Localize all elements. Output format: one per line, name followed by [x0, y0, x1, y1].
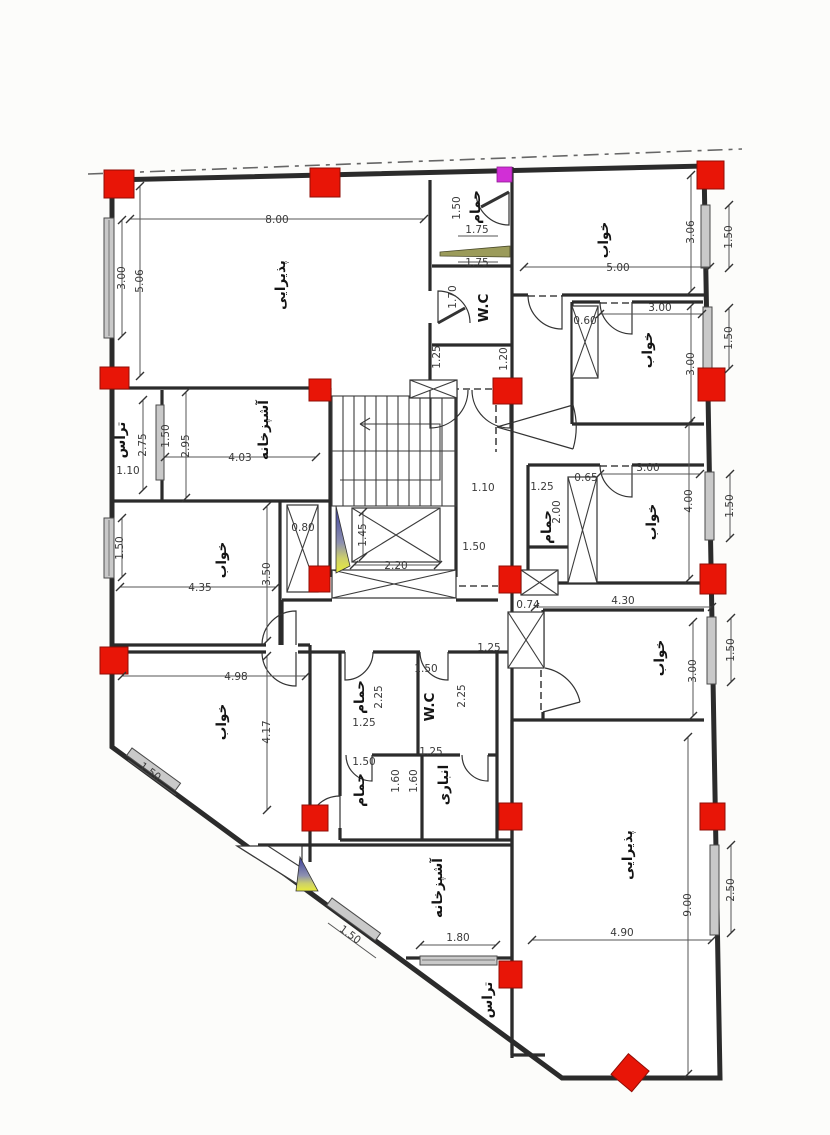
shaft-corridor — [521, 570, 558, 595]
room-label-terrace-bottom: تراس — [480, 982, 496, 1019]
dim-text: 1.50 — [725, 638, 737, 661]
dim-text: 3.00 — [648, 302, 671, 314]
dim-text: 2.20 — [384, 560, 407, 572]
room-label-bath-mid: حمام — [539, 510, 555, 544]
dim-text: 9.00 — [682, 893, 694, 916]
column — [104, 170, 134, 198]
column — [309, 566, 330, 592]
shaft-bedroom3 — [568, 477, 597, 583]
window-right-4 — [707, 617, 716, 684]
dim-text: 1.50 — [462, 541, 485, 553]
dim-text: 1.70 — [447, 285, 459, 308]
column — [310, 168, 340, 197]
dim-text: 1.50 — [352, 756, 375, 768]
dim-text: 8.00 — [265, 214, 288, 226]
dim-text: 1.50 — [414, 663, 437, 675]
dim-text: 0.60 — [573, 315, 596, 327]
dim-text: 0.80 — [291, 522, 314, 534]
dim-text: 2.95 — [180, 434, 192, 457]
room-label-bath-cluster2: حمام — [352, 773, 368, 807]
dim-text: 1.25 — [352, 717, 375, 729]
dim-text: 4.03 — [228, 452, 251, 464]
column — [499, 566, 521, 593]
column — [309, 379, 331, 401]
room-label-storage: انباری — [436, 765, 452, 805]
room-label-bedroom-6: خواب — [214, 704, 230, 740]
shaft-074 — [508, 612, 544, 668]
dim-text: 1.50 — [724, 494, 736, 517]
dim-text: 1.60 — [390, 769, 402, 792]
dim-text: 1.10 — [116, 465, 139, 477]
window-right-3 — [705, 472, 714, 540]
column — [100, 647, 128, 674]
dim-text: 2.50 — [725, 878, 737, 901]
column — [698, 368, 725, 401]
dim-text: 1.75 — [465, 257, 488, 269]
shaft-triangle-bl — [237, 846, 302, 887]
column — [499, 803, 522, 830]
room-label-bedroom-2: خواب — [640, 332, 656, 368]
dim-text: 1.50 — [723, 225, 735, 248]
dim-text: 1.50 — [451, 196, 463, 219]
window-right-2 — [703, 307, 712, 370]
shaft-stair-top — [410, 380, 457, 398]
column — [302, 805, 328, 831]
room-label-bath-top: حمام — [468, 190, 484, 224]
dim-text: 4.98 — [224, 671, 247, 683]
dim-text: 1.20 — [498, 347, 510, 370]
dim-text: 3.00 — [116, 266, 128, 289]
dim-text: 4.30 — [611, 595, 634, 607]
dim-text: 3.00 — [685, 352, 697, 375]
room-label-bedroom-5: خواب — [652, 640, 668, 676]
room-label-wc-2: W.C — [422, 692, 438, 721]
dim-text: 3.06 — [685, 220, 697, 244]
dim-text: 1.25 — [419, 746, 442, 758]
window-right-1 — [701, 205, 710, 268]
stair-lower-strip — [332, 570, 456, 598]
dim-text: 2.25 — [373, 685, 385, 708]
dim-text: 5.06 — [134, 269, 146, 293]
dim-text: 3.00 — [636, 462, 659, 474]
room-label-bedroom-4: خواب — [214, 542, 230, 578]
dim-text: 3.50 — [261, 562, 273, 585]
column — [700, 803, 725, 830]
dim-text: 1.50 — [723, 326, 735, 349]
dim-text: 4.17 — [261, 720, 273, 743]
column — [100, 367, 129, 389]
dim-text: 1.50 — [160, 424, 172, 447]
room-label-bedroom-1: خواب — [596, 222, 612, 258]
dim-text: 1.25 — [477, 642, 500, 654]
dim-text: 3.00 — [687, 659, 699, 682]
room-label-bedroom-3: خواب — [644, 504, 660, 540]
dim-text: 1.25 — [530, 481, 553, 493]
dim-text: 1.60 — [408, 769, 420, 792]
dim-text: 0.74 — [516, 599, 540, 611]
room-label-wc-top: W.C — [476, 293, 492, 322]
dim-text: 0.65 — [574, 472, 597, 484]
floor-plan-drawing: 8.00 5.06 3.00 1.50 1.75 1.75 1.70 5.00 … — [0, 0, 830, 1135]
dim-text: 1.45 — [357, 523, 369, 546]
dim-text: 5.00 — [606, 262, 629, 274]
dim-text: 2.25 — [456, 684, 468, 707]
room-label-reception-bottom: پذیرایی — [620, 830, 636, 880]
column — [493, 378, 522, 404]
room-label-bath-cluster1: حمام — [352, 680, 368, 714]
column — [499, 961, 522, 988]
dim-text: 4.35 — [188, 582, 211, 594]
dim-text: 2.75 — [137, 433, 149, 456]
dim-text: 1.10 — [471, 482, 494, 494]
dim-text: 1.80 — [446, 932, 469, 944]
dim-text: 1.75 — [465, 224, 488, 236]
room-label-terrace-top: تراس — [113, 422, 129, 459]
floor-plan-page: 8.00 5.06 3.00 1.50 1.75 1.75 1.70 5.00 … — [0, 0, 830, 1135]
dim-text: 1.25 — [431, 345, 443, 368]
window-right-5 — [710, 845, 719, 935]
room-label-kitchen-bottom: آشپزخانه — [429, 858, 446, 918]
magenta-marker — [497, 167, 512, 182]
room-label-reception-top: پذیرایی — [273, 260, 289, 310]
dim-text: 4.00 — [683, 489, 695, 512]
room-label-kitchen-top: آشپزخانه — [255, 400, 272, 460]
column — [697, 161, 724, 189]
dim-text: 1.50 — [114, 536, 126, 559]
column — [700, 564, 726, 594]
dim-text: 4.90 — [610, 927, 633, 939]
